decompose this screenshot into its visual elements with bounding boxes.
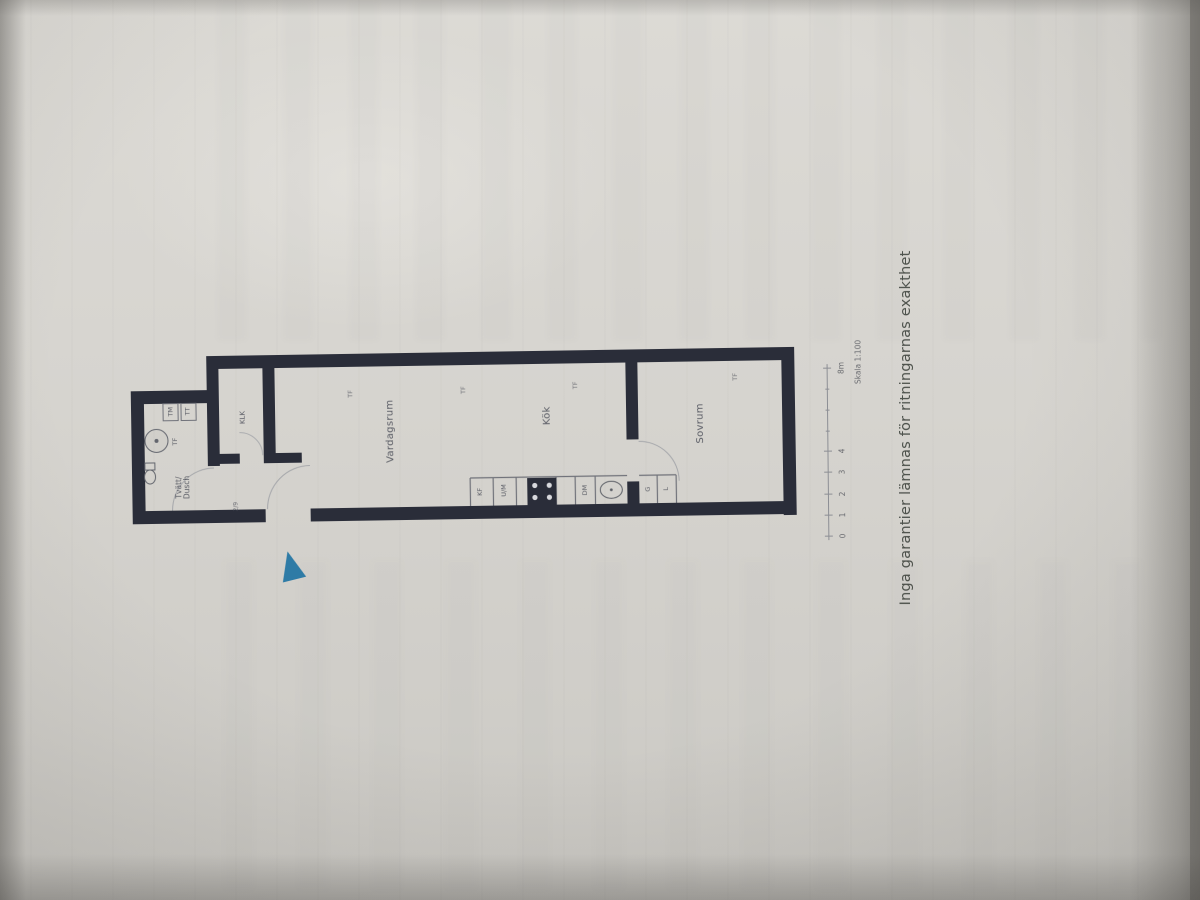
entrance-door-arc [267,466,311,510]
scale-tick-1: 1 [838,513,847,518]
room-label-bathroom-line2: Dusch [183,476,191,499]
toilet-tank-icon [145,463,155,470]
label-dishwasher: DM [582,485,589,496]
scale-bar: 0 1 2 3 4 8m [817,358,865,550]
paper-edge-shadow-top [0,0,1200,16]
paper-edge-shadow-left [0,0,26,900]
label-dryer: TT [185,407,192,415]
room-label-closet: KLK [239,411,247,424]
disclaimer-text: Inga garantier lämnas för ritningarnas e… [898,251,914,606]
scale-text: Skala 1:100 [854,340,863,384]
paper-edge-right [1190,0,1200,900]
label-washing-machine: TM [168,407,175,417]
label-bath-cabinet: TF [172,438,179,446]
stove-icon [527,478,556,505]
label-linen-closet: L [663,487,670,491]
label-oven-microwave: U/M [501,484,508,497]
paper-edge-shadow-right [1130,0,1200,900]
paper-edge-shadow-bottom [0,854,1200,900]
room-label-bedroom: Sovrum [696,403,707,444]
paper-bleed-through [180,0,1160,340]
scale-tick-4: 4 [837,449,846,454]
scale-tick-0: 0 [838,534,847,539]
scale-tick-3: 3 [838,470,847,475]
scale-bar-line [817,358,865,550]
window-marker: TF [572,381,579,389]
window-marker: TF [347,390,354,398]
room-label-kitchen: Kök [543,406,554,425]
plan-detail-drawing [118,335,822,606]
closet-door-arc [239,432,262,455]
paper-bleed-through [180,560,1160,890]
sink-drain-icon [610,488,613,491]
window-marker: TF [460,386,467,394]
paper-highlight [120,30,620,330]
scale-tick-2: 2 [838,492,847,497]
scale-tick-8m: 8m [837,362,846,374]
room-label-bathroom: Tvätt/ Dusch [175,476,191,500]
label-wardrobe: G [645,487,652,492]
floor-plan: Tvätt/ Dusch KLK Vardagsrum Kök Sovrum T… [118,335,822,606]
toilet-bowl-icon [144,470,155,484]
entrance-note: 2/9 [233,502,239,512]
room-label-living-room: Vardagsrum [386,399,397,463]
label-fridge-freezer: KF [477,488,484,496]
window-marker: TF [732,373,739,381]
photo-of-floor-plan: { "plan": { "rooms": { "bathroom_line1":… [0,0,1200,900]
